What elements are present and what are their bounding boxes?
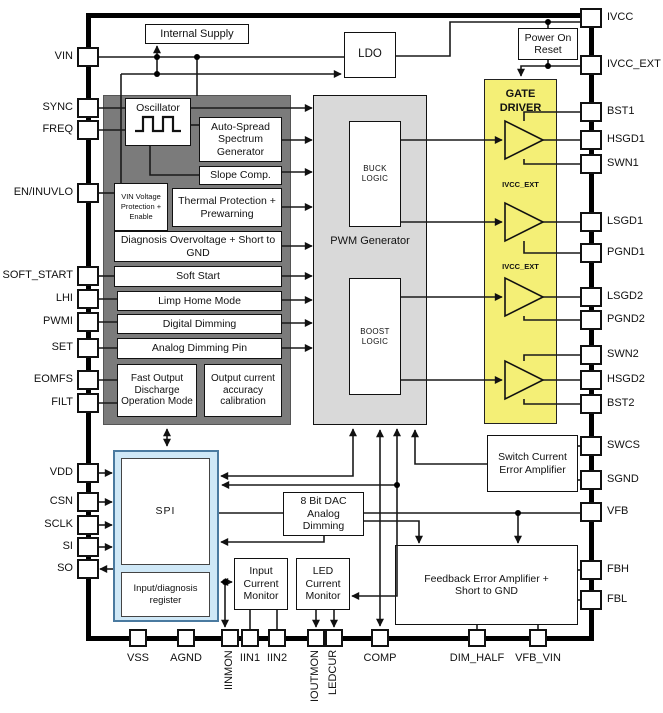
pin-swn2 [580,345,602,365]
vin-protection-box: VIN Voltage Protection + Enable [114,183,168,231]
pin-fbl [580,590,602,610]
pin-sync-label: SYNC [0,101,73,113]
pwm-generator-label: PWM Generator [313,234,427,248]
pin-pgnd2 [580,310,602,330]
pin-pgnd2-label: PGND2 [607,313,645,325]
pin-ledcur [325,629,343,647]
pin-lhi-label: LHI [0,292,73,304]
ivcc-ext-rail-label-1: IVCC_EXT [484,180,557,190]
feedback-ea-label: Feedback Error Amplifier + Short to GND [418,573,556,598]
pin-ivcc [580,8,602,28]
pin-vss-label: VSS [113,652,163,664]
pin-ioutmon [307,629,325,647]
feedback-ea-box: Feedback Error Amplifier + Short to GND [395,545,578,625]
pin-swn2-label: SWN2 [607,348,639,360]
pin-pgnd1 [580,243,602,263]
dac-box: 8 Bit DAC Analog Dimming [283,492,364,536]
gate-driver-label: GATE DRIVER [484,87,557,116]
pin-sclk-label: SCLK [0,518,73,530]
pin-vdd-label: VDD [0,466,73,478]
pin-iin2 [268,629,286,647]
pin-sclk [77,515,99,535]
analog-dimming-box: Analog Dimming Pin [117,338,282,359]
auto-spread-box: Auto-Spread Spectrum Generator [199,117,282,162]
pin-ivcc-ext-label: IVCC_EXT [607,58,661,70]
boost-logic-box: BOOST LOGIC [349,278,401,395]
oscillator-box: Oscillator [125,98,191,146]
pin-csn [77,492,99,512]
internal-supply-box: Internal Supply [145,24,249,44]
diagnosis-box: Diagnosis Overvoltage + Short to GND [114,231,282,262]
pin-fbh [580,560,602,580]
led-current-monitor-box: LED Current Monitor [296,558,350,610]
switch-current-ea-box: Switch Current Error Amplifier [487,435,578,492]
digital-dimming-box: Digital Dimming [117,314,282,334]
fast-output-discharge-box: Fast Output Discharge Operation Mode [117,364,197,417]
pin-pwmi-label: PWMI [0,315,73,327]
pin-dim-half-label: DIM_HALF [447,652,507,664]
pin-hsgd2 [580,370,602,390]
pin-bst1-label: BST1 [607,105,635,117]
pin-sync [77,98,99,118]
pin-iin1 [241,629,259,647]
pin-bst2 [580,394,602,414]
pin-lsgd2-label: LSGD2 [607,290,643,302]
pin-ledcur-label: LEDCUR [327,650,342,710]
pin-filt [77,393,99,413]
soft-start-box: Soft Start [114,266,282,287]
block-diagram: PWM Generator GATE DRIVER IVCC_EXT IVCC_… [0,0,663,713]
pin-pgnd1-label: PGND1 [607,246,645,258]
oscillator-label: Oscillator [136,102,180,114]
pin-vin-label: VIN [0,50,73,62]
power-on-reset-box: Power On Reset [518,28,578,60]
pin-vfb-vin [529,629,547,647]
pin-set [77,338,99,358]
pin-si [77,537,99,557]
pin-swn1-label: SWN1 [607,157,639,169]
pin-ivcc-label: IVCC [607,11,633,23]
pin-fbl-label: FBL [607,593,627,605]
slope-comp-box: Slope Comp. [199,166,282,185]
pin-hsgd1-label: HSGD1 [607,133,645,145]
pin-lsgd2 [580,287,602,307]
input-current-monitor-box: Input Current Monitor [234,558,288,610]
pin-ivcc-ext [580,55,602,75]
pin-ioutmon-label: IOUTMON [309,650,324,710]
pin-filt-label: FILT [0,396,73,408]
pin-iin2-label: IIN2 [255,652,299,664]
pin-lsgd1-label: LSGD1 [607,215,643,227]
pin-so-label: SO [0,562,73,574]
pin-vdd [77,463,99,483]
pin-freq-label: FREQ [0,123,73,135]
pin-soft-start-label: SOFT_START [0,269,73,281]
pin-hsgd1 [580,130,602,150]
gate-driver-block [484,79,557,424]
limp-home-box: Limp Home Mode [117,291,282,311]
pin-comp-label: COMP [355,652,405,664]
ldo-box: LDO [344,32,396,78]
pin-lsgd1 [580,212,602,232]
pin-swcs [580,436,602,456]
pin-dim-half [468,629,486,647]
pin-sgnd [580,470,602,490]
pin-bst2-label: BST2 [607,397,635,409]
pin-vfb [580,502,602,522]
pin-pwmi [77,312,99,332]
square-wave-icon [133,114,183,134]
ivcc-ext-rail-label-2: IVCC_EXT [484,262,557,272]
pin-swcs-label: SWCS [607,439,640,451]
thermal-protection-box: Thermal Protection + Prewarning [172,188,282,227]
pin-set-label: SET [0,341,73,353]
pin-bst1 [580,102,602,122]
output-current-cal-box: Output current accuracy calibration [204,364,282,417]
pin-freq [77,120,99,140]
buck-logic-box: BUCK LOGIC [349,121,401,227]
spi-box: SPI [121,458,210,565]
pin-agnd [177,629,195,647]
pin-iinmon [221,629,239,647]
pin-agnd-label: AGND [161,652,211,664]
pin-en-inuvlo [77,183,99,203]
pin-en-inuvlo-label: EN/INUVLO [0,186,73,198]
pin-fbh-label: FBH [607,563,629,575]
pin-vfb-label: VFB [607,505,628,517]
pin-so [77,559,99,579]
pin-vss [129,629,147,647]
pin-eomfs [77,370,99,390]
pin-vfb-vin-label: VFB_VIN [509,652,567,664]
pin-comp [371,629,389,647]
pin-soft-start [77,266,99,286]
pin-si-label: SI [0,540,73,552]
pin-eomfs-label: EOMFS [0,373,73,385]
pin-hsgd2-label: HSGD2 [607,373,645,385]
io-register-box: Input/diagnosis register [121,572,210,617]
pin-vin [77,47,99,67]
pin-sgnd-label: SGND [607,473,639,485]
pin-lhi [77,289,99,309]
pin-swn1 [580,154,602,174]
pin-csn-label: CSN [0,495,73,507]
